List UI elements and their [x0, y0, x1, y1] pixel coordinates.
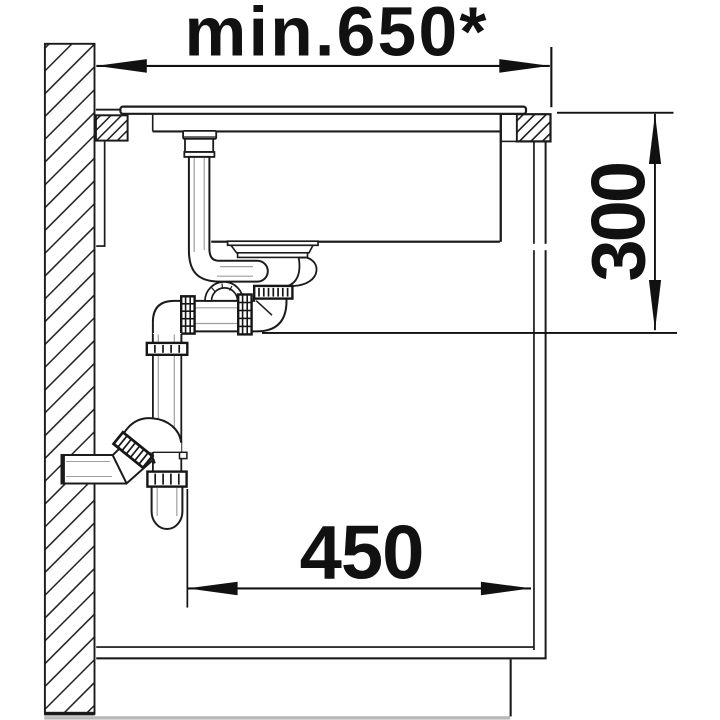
svg-text:300: 300 [576, 163, 661, 282]
svg-text:min.650*: min.650* [185, 0, 489, 71]
svg-text:450: 450 [300, 511, 424, 596]
